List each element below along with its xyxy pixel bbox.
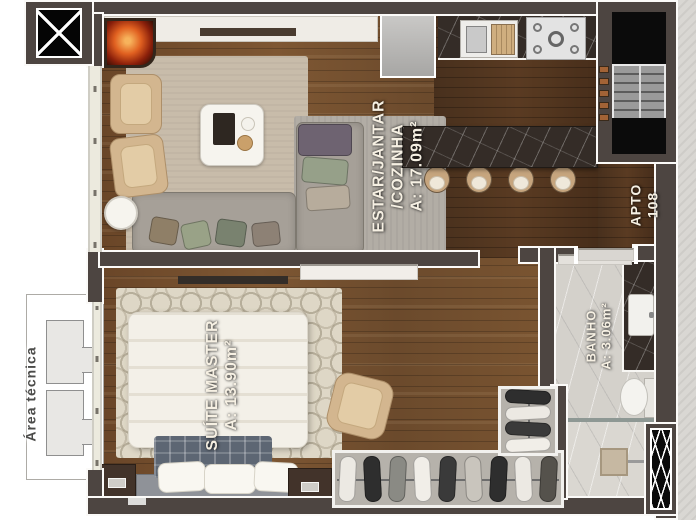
clothes-hanger xyxy=(338,456,357,503)
clothes-hanger xyxy=(413,456,432,503)
side-table xyxy=(104,196,138,230)
entry-door xyxy=(578,248,634,261)
shower-glass xyxy=(554,418,656,422)
kitchen-sink xyxy=(460,20,518,58)
apartment-number-line2: 108 xyxy=(644,184,661,227)
clothes-hanger xyxy=(463,456,482,503)
bowl xyxy=(237,135,253,151)
elevator-icon xyxy=(36,8,82,58)
stair-tick xyxy=(599,114,609,121)
wall-vent xyxy=(128,498,146,505)
clothes-hanger xyxy=(539,456,558,503)
stair-tick xyxy=(599,102,609,109)
living-room-name: ESTAR/JANTAR xyxy=(371,99,390,232)
tray xyxy=(213,113,235,145)
nightstand-handle xyxy=(108,478,126,488)
bar-stool xyxy=(466,166,492,193)
technical-area-name: Área técnica xyxy=(23,346,40,441)
armchair xyxy=(110,74,162,134)
clothes-hanger xyxy=(505,405,552,421)
duct-shaft-icon xyxy=(650,428,672,510)
entry-door-frame xyxy=(574,246,578,264)
wardrobe-bottom xyxy=(332,450,564,508)
bath-area: A: 3.06m² xyxy=(599,302,614,370)
bath-name: BANHO xyxy=(584,302,599,370)
ac-condenser xyxy=(46,320,84,384)
burner xyxy=(548,31,564,47)
living-room-label: ESTAR/JANTAR /COZINHA A: 17.09m² xyxy=(371,99,428,232)
blanket xyxy=(298,124,352,156)
coffee-table xyxy=(200,104,264,166)
wardrobe-right xyxy=(498,386,558,456)
stairs xyxy=(612,64,666,122)
stairwell-void-bottom xyxy=(612,118,666,154)
floor-plan: ESTAR/JANTAR /COZINHA A: 17.09m² SUÍTE M… xyxy=(0,0,696,520)
kitchen-island xyxy=(402,126,598,168)
tv-panel xyxy=(178,276,288,284)
apartment-number-line1: APTO xyxy=(627,184,644,227)
clothes-hanger xyxy=(505,437,552,453)
wall-divider-living-bedroom xyxy=(98,250,480,268)
bed-pillow xyxy=(204,464,256,494)
bar-stool xyxy=(550,166,576,193)
bar-stool xyxy=(424,166,450,193)
clothes-hanger xyxy=(505,389,552,405)
stair-tick xyxy=(599,78,609,85)
refrigerator xyxy=(380,14,436,78)
throw-pillow xyxy=(305,184,351,211)
wall-top xyxy=(86,0,598,16)
stair-tick xyxy=(599,66,609,73)
cutting-board xyxy=(491,24,515,55)
clothes-hanger xyxy=(363,456,382,503)
suite-label: SUÍTE MASTER A: 13.90m² xyxy=(204,319,242,450)
bedroom-window xyxy=(92,302,102,470)
suite-area: A: 13.90m² xyxy=(223,319,242,450)
clothes-hanger xyxy=(388,456,407,503)
living-window xyxy=(88,66,102,252)
toilet xyxy=(620,378,648,416)
bedroom-sliding-door xyxy=(300,264,418,280)
stairwell-void-top xyxy=(612,12,666,68)
throw-pillow xyxy=(148,216,180,246)
shower-drain xyxy=(600,448,628,476)
burner xyxy=(570,23,579,32)
nightstand-handle xyxy=(301,482,319,492)
bar-stool xyxy=(508,166,534,193)
clothes-hanger xyxy=(438,456,457,503)
suite-name: SUÍTE MASTER xyxy=(204,319,223,450)
throw-pillow xyxy=(251,221,281,248)
armchair xyxy=(109,133,170,199)
throw-pillow xyxy=(214,218,247,248)
bath-label: BANHO A: 3.06m² xyxy=(584,302,615,370)
burner xyxy=(533,23,542,32)
throw-pillow xyxy=(301,156,349,186)
fireplace xyxy=(104,18,156,68)
plate xyxy=(241,117,255,131)
burner xyxy=(570,45,579,54)
bed-pillow xyxy=(157,461,207,493)
cooktop xyxy=(526,17,586,60)
wall-shelf xyxy=(200,28,296,36)
living-room-area: A: 17.09m² xyxy=(408,99,427,232)
living-room-name2: /COZINHA xyxy=(390,99,409,232)
burner xyxy=(533,45,542,54)
clothes-hanger xyxy=(514,456,533,503)
clothes-hanger xyxy=(505,421,552,437)
apartment-number-label: APTO 108 xyxy=(627,184,660,227)
clothes-hanger xyxy=(489,456,508,503)
stair-tick xyxy=(599,90,609,97)
wall-bath-left xyxy=(538,246,556,400)
exterior-concrete xyxy=(676,0,696,520)
sink-basin xyxy=(466,26,487,53)
technical-area-label: Área técnica xyxy=(23,346,40,441)
ac-condenser xyxy=(46,390,84,456)
entry-door-frame xyxy=(634,246,638,264)
